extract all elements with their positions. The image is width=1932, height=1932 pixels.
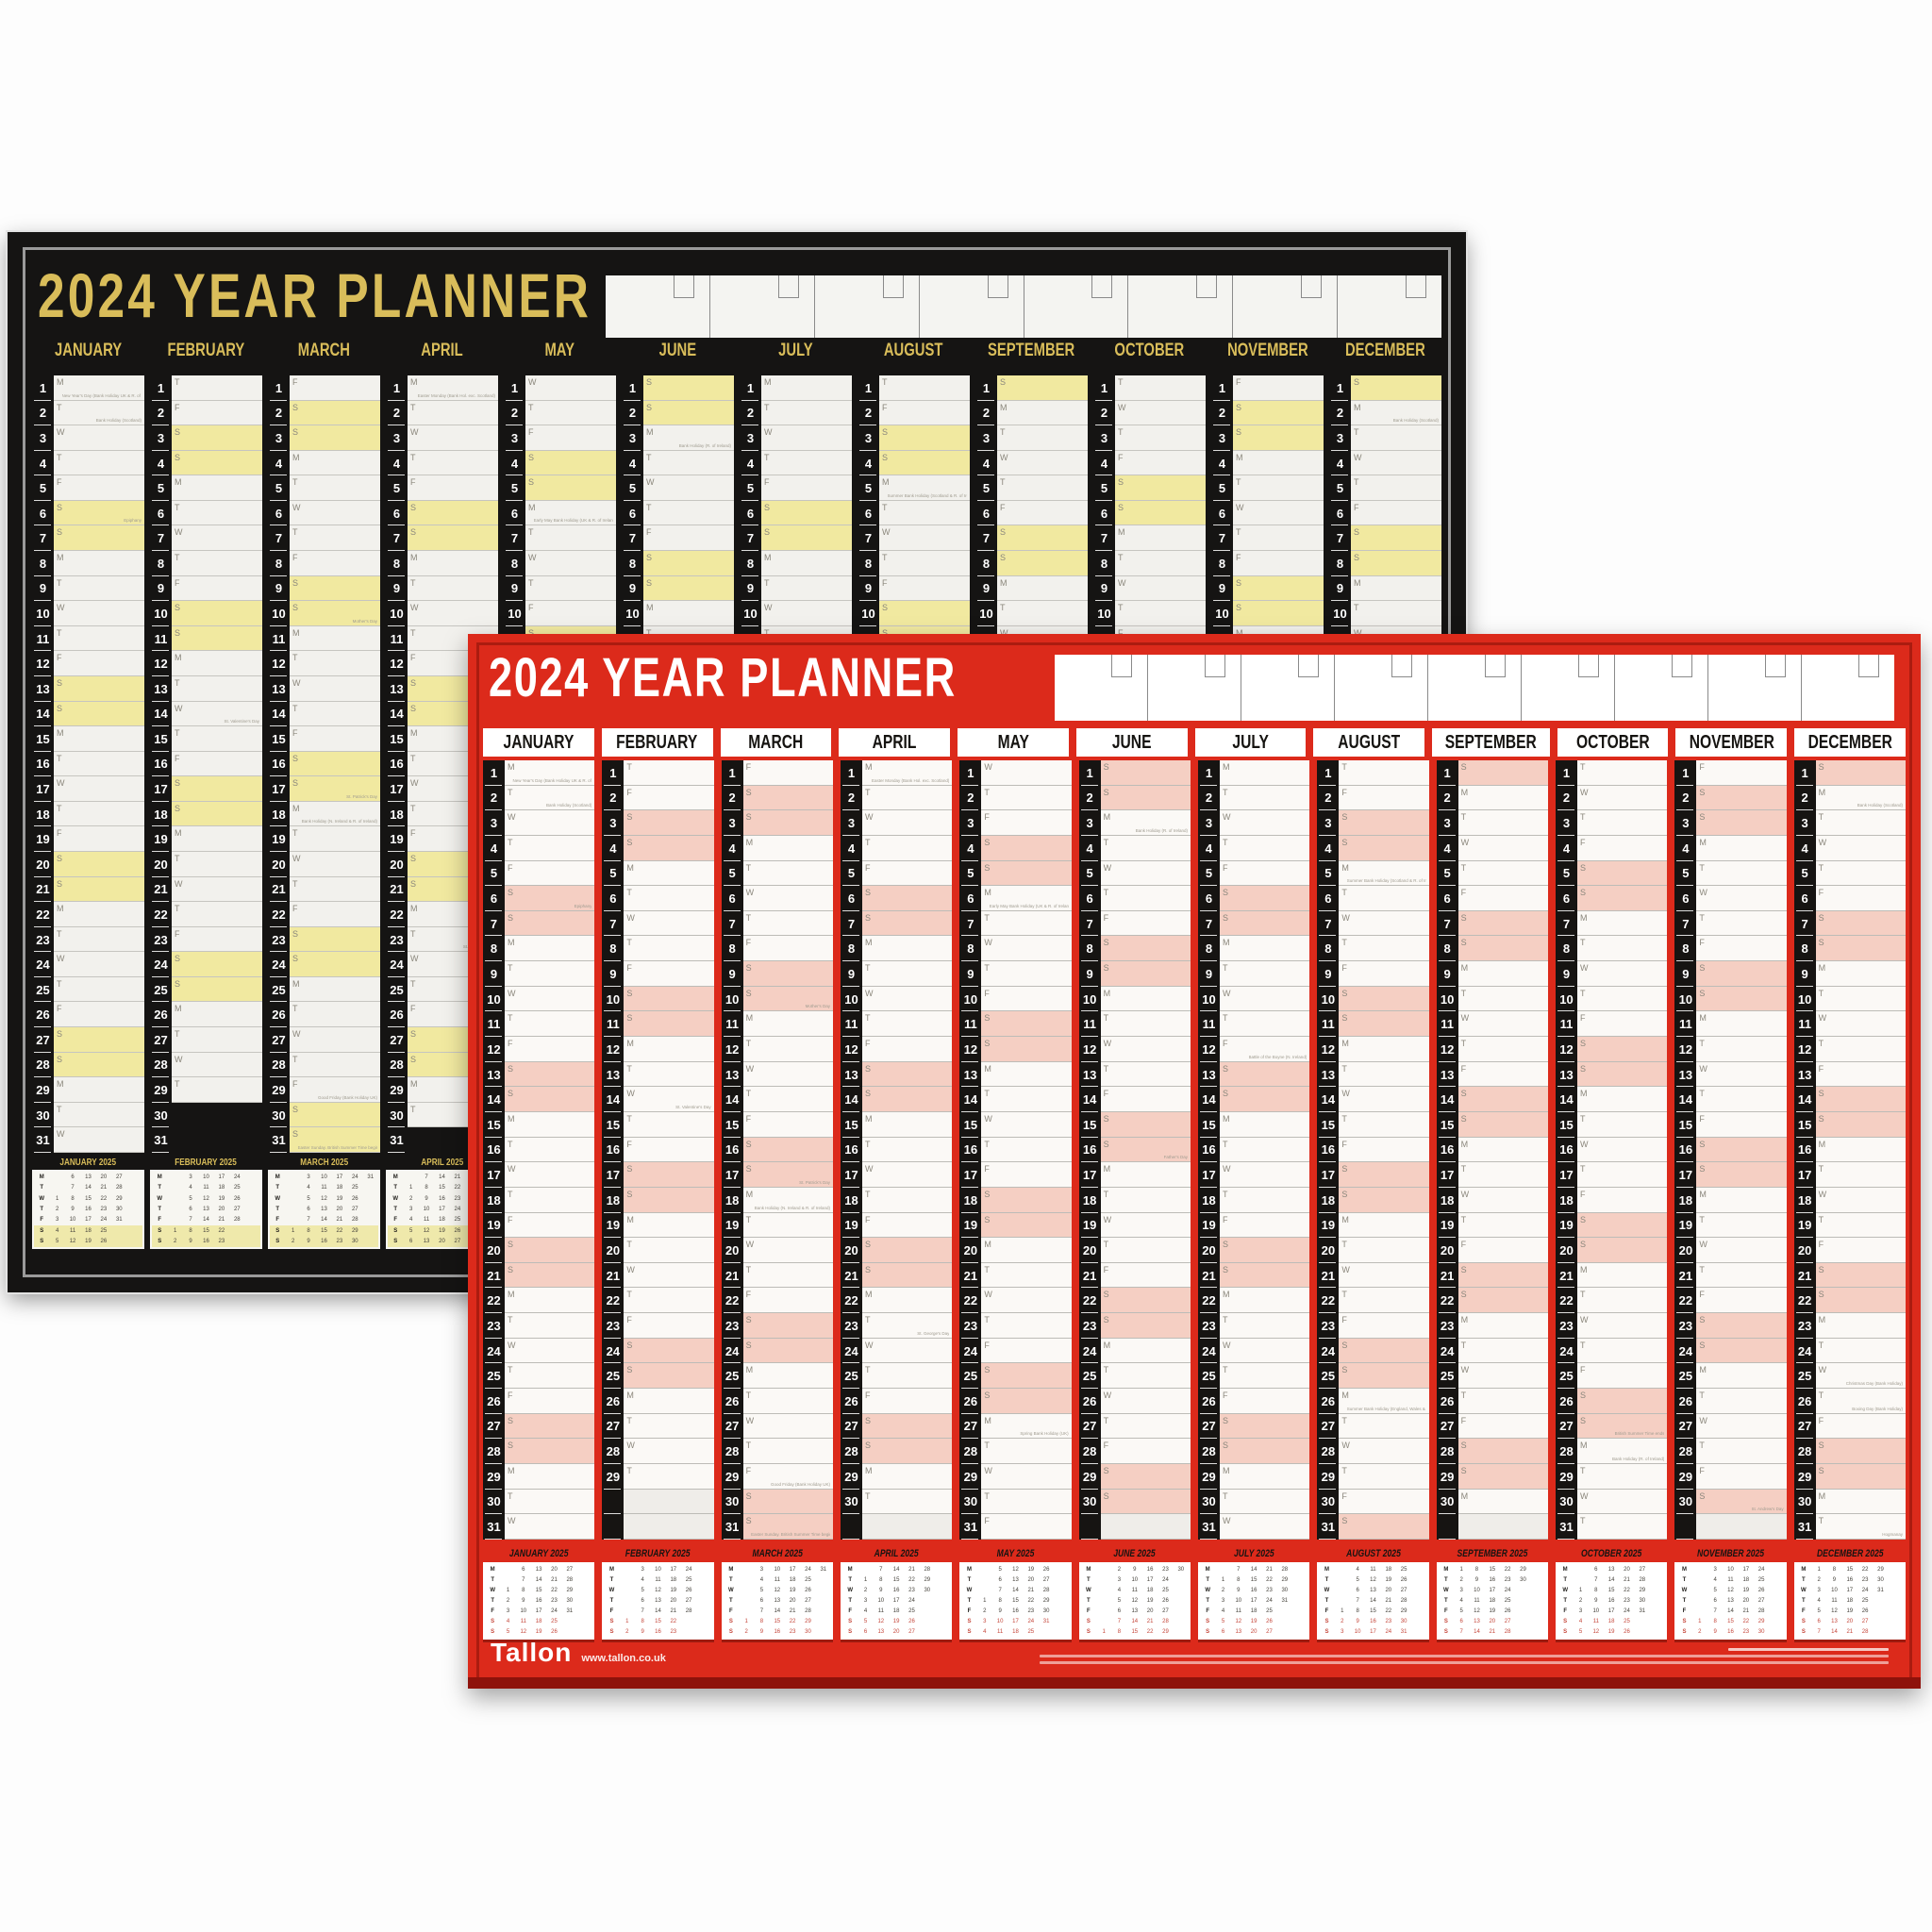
day-row: 5T: [722, 861, 833, 887]
day-row: 23S: [722, 1313, 833, 1339]
day-number: 10: [1198, 987, 1220, 1012]
day-number: 8: [975, 551, 997, 576]
day-number: 18: [1079, 1188, 1101, 1213]
mini-day-number: 22: [1500, 1567, 1515, 1573]
day-number: 17: [483, 1162, 505, 1188]
day-cell: W: [408, 601, 498, 626]
mini-day-number: 29: [1039, 1598, 1054, 1604]
day-number: 7: [1093, 525, 1115, 551]
day-letter: T: [746, 1039, 752, 1048]
day-letter: F: [865, 1215, 871, 1224]
day-letter: W: [1580, 963, 1589, 973]
day-letter: T: [746, 1089, 752, 1098]
day-number: 15: [268, 726, 290, 752]
day-letter: W: [508, 989, 516, 998]
holiday-note: Hogmanay: [1882, 1532, 1903, 1537]
mini-dow-letter: T: [1557, 1577, 1573, 1583]
day-number: 3: [1674, 810, 1696, 836]
day-letter: T: [410, 979, 416, 989]
mini-day-number: 17: [434, 1207, 449, 1212]
day-row: 20S: [1198, 1238, 1309, 1263]
day-number: 5: [959, 861, 981, 887]
mini-day-number: 16: [1485, 1577, 1500, 1583]
day-letter: T: [626, 888, 632, 897]
day-letter: W: [528, 377, 537, 387]
day-row: 22S: [1437, 1288, 1548, 1313]
mini-day-number: 15: [1246, 1577, 1261, 1583]
mini-calendar-row: F5121926: [1796, 1607, 1904, 1617]
mini-day-number: 16: [434, 1196, 449, 1202]
day-cell: W: [761, 601, 852, 626]
day-cell: S: [1351, 375, 1441, 401]
day-number: 3: [1437, 810, 1458, 836]
day-cell: W: [408, 425, 498, 451]
day-letter: W: [1104, 863, 1112, 873]
day-row: 4T: [1198, 836, 1309, 861]
day-letter: T: [1104, 1064, 1109, 1074]
mini-calendar-row: M6132027: [34, 1172, 142, 1182]
day-letter: W: [626, 913, 635, 923]
day-row: 22M: [841, 1288, 952, 1313]
day-row: 7F: [622, 525, 734, 551]
day-row: 4W: [975, 451, 1088, 476]
day-row: 28F: [1079, 1439, 1191, 1464]
mini-day-number: 1: [403, 1185, 418, 1191]
mini-day-number: 13: [1127, 1608, 1142, 1614]
day-number: 27: [1317, 1414, 1339, 1440]
day-letter: T: [1461, 1164, 1467, 1174]
day-cell: SEaster Sunday. British Summer Time begi…: [743, 1514, 833, 1540]
day-row: 17W: [841, 1162, 952, 1188]
mini-day-number: 20: [1485, 1619, 1500, 1624]
day-letter: S: [57, 854, 62, 863]
mini-day-number: 3: [754, 1567, 769, 1573]
day-cell: T: [1696, 1439, 1786, 1464]
day-cell: S: [1220, 1087, 1309, 1112]
mini-dow-letter: M: [724, 1567, 739, 1573]
mini-day-number: 2: [1573, 1598, 1588, 1604]
mini-day-number: 22: [1261, 1577, 1276, 1583]
day-cell: T: [172, 375, 262, 401]
month-header-label: JUNE: [1112, 733, 1152, 752]
day-letter: S: [746, 1164, 752, 1174]
day-number: 27: [1794, 1414, 1816, 1440]
day-cell: T: [1577, 936, 1667, 961]
day-number: 22: [150, 902, 172, 927]
mini-calendar-row: S6132027: [842, 1627, 950, 1638]
mini-day-number: 17: [80, 1217, 95, 1223]
day-number: 3: [722, 810, 743, 836]
mini-day-number: 8: [1826, 1567, 1841, 1573]
day-letter: S: [1236, 427, 1241, 437]
day-cell: S: [862, 1062, 952, 1088]
mini-day-number: 25: [450, 1217, 465, 1223]
day-cell: T: [54, 927, 144, 953]
mini-day-number: 19: [1246, 1619, 1261, 1624]
day-row: 22W: [959, 1288, 1071, 1313]
day-cell: S: [879, 601, 970, 626]
day-number: 13: [483, 1062, 505, 1088]
mini-day-number: 25: [1500, 1598, 1515, 1604]
day-letter: M: [508, 1114, 515, 1124]
mini-day-number: 1: [858, 1577, 873, 1583]
day-letter: M: [508, 1290, 515, 1299]
mini-dow-letter: M: [1557, 1567, 1573, 1573]
mini-day-number: 2: [620, 1629, 635, 1635]
day-row: 3W: [1198, 810, 1309, 836]
day-number: 23: [268, 927, 290, 953]
day-letter: T: [1236, 527, 1241, 537]
holiday-note: Bank Holiday (R. of Ireland): [1612, 1457, 1664, 1461]
day-number: 22: [1674, 1288, 1696, 1313]
day-letter: M: [410, 728, 418, 738]
day-cell: S: [862, 1439, 952, 1464]
mini-day-number: 26: [96, 1239, 111, 1244]
day-letter: T: [1223, 1365, 1228, 1374]
day-letter: W: [1000, 453, 1008, 462]
day-number: 27: [602, 1414, 624, 1440]
brand-footer: Tallonwww.tallon.co.uk: [491, 1640, 666, 1666]
mini-day-number: 9: [1350, 1619, 1365, 1624]
mini-day-number: 1: [1573, 1588, 1588, 1593]
day-cell: F: [1339, 786, 1428, 811]
day-row: 12S: [959, 1037, 1071, 1062]
day-letter: T: [1223, 963, 1228, 973]
day-cell: S: [172, 952, 262, 977]
day-letter: S: [1104, 1140, 1109, 1149]
mini-day-number: 5: [992, 1567, 1008, 1573]
day-letter: W: [1461, 1013, 1470, 1023]
day-row: 4T: [740, 451, 852, 476]
mini-day-number: 21: [1261, 1567, 1276, 1573]
mini-day-number: 1: [1215, 1577, 1230, 1583]
day-number: 22: [1556, 1288, 1577, 1313]
day-number: 2: [622, 401, 643, 426]
day-letter: S: [508, 888, 513, 897]
day-letter: T: [1118, 427, 1124, 437]
day-number: 1: [504, 375, 525, 401]
day-number: 2: [1198, 786, 1220, 811]
day-letter: F: [1104, 1089, 1109, 1098]
day-cell: T: [1115, 551, 1206, 576]
mini-day-number: 25: [1261, 1608, 1276, 1614]
day-row: 9S: [622, 576, 734, 602]
day-letter: F: [1104, 1441, 1109, 1450]
mini-day-number: 8: [1589, 1588, 1604, 1593]
month-header-card: DECEMBER: [1794, 728, 1906, 757]
day-number: 3: [1093, 425, 1115, 451]
month-header-label: APRIL: [873, 733, 917, 752]
mini-dow-letter: F: [34, 1217, 49, 1223]
day-number: 6: [722, 886, 743, 911]
mini-calendar: FEBRUARY 2025M3101724T4111825W5121926T61…: [150, 1155, 262, 1249]
mini-day-number: 26: [800, 1588, 815, 1593]
day-row: 26T: [722, 1389, 833, 1414]
day-number: 5: [1198, 861, 1220, 887]
day-number: 7: [959, 911, 981, 937]
mini-dow-letter: F: [1439, 1608, 1454, 1614]
mini-day-number: 9: [1127, 1567, 1142, 1573]
day-cell: T: [172, 676, 262, 702]
day-letter: T: [175, 1029, 180, 1039]
mini-calendar-title: JUNE 2025: [1079, 1545, 1191, 1562]
day-row: 14T: [722, 1087, 833, 1112]
day-row: 31SEaster Sunday. British Summer Time be…: [722, 1514, 833, 1540]
day-cell: S: [1101, 1464, 1191, 1490]
day-cell: F: [1339, 961, 1428, 987]
day-letter: S: [410, 704, 416, 713]
day-row: 3T: [1556, 810, 1667, 836]
day-row: 8M: [841, 936, 952, 961]
mini-calendar-card: M18152229T29162330W3101724T4111825F51219…: [1437, 1562, 1548, 1640]
day-cell: S: [1458, 1464, 1548, 1490]
day-cell: FBattle of the Boyne (N. Ireland): [1220, 1037, 1309, 1062]
day-row: 13S: [483, 1062, 594, 1088]
holiday-note: Christmas Day (Bank Holiday): [1846, 1381, 1903, 1386]
day-number: 23: [1198, 1313, 1220, 1339]
mini-day-number: 16: [889, 1588, 904, 1593]
day-number: 13: [959, 1062, 981, 1088]
month-column: 1MNew Year's Day (Bank Holiday UK & R. o…: [32, 375, 144, 1153]
day-row: 7S: [1437, 911, 1548, 937]
day-row: 17M: [1079, 1162, 1191, 1188]
day-number: 13: [268, 676, 290, 702]
day-number: 7: [386, 525, 408, 551]
mini-day-number: 14: [316, 1217, 331, 1223]
day-letter: S: [1819, 938, 1824, 947]
day-cell: S: [1458, 936, 1548, 961]
day-number: 15: [32, 726, 54, 752]
day-row: 14WSt. Valentine's Day: [150, 702, 262, 727]
day-number: 8: [1794, 936, 1816, 961]
mini-day-number: 19: [1142, 1598, 1158, 1604]
day-row: 26S: [1556, 1389, 1667, 1414]
day-row: 20S: [32, 852, 144, 877]
day-letter: S: [1118, 503, 1124, 512]
day-row: 19T: [722, 1213, 833, 1239]
day-number: 23: [1556, 1313, 1577, 1339]
mini-day-number: 6: [1707, 1598, 1723, 1604]
day-number: 19: [1079, 1213, 1101, 1239]
day-cell: SEaster Sunday. British Summer Time begi…: [290, 1127, 380, 1153]
day-letter: T: [292, 1055, 298, 1064]
mini-day-number: 9: [419, 1196, 434, 1202]
day-cell: S: [1696, 1138, 1786, 1163]
day-number: 2: [504, 401, 525, 426]
mini-day-number: 15: [889, 1577, 904, 1583]
mini-calendar-card: M4111825T5121926W6132027T7142128F1815222…: [1317, 1562, 1428, 1640]
day-letter: W: [175, 879, 183, 889]
mini-calendar-row: S4111825: [34, 1225, 142, 1236]
day-letter: M: [508, 762, 515, 772]
mini-calendar-row: S18152229: [1676, 1617, 1784, 1627]
day-letter: W: [57, 778, 65, 788]
day-cell: S: [1339, 1363, 1428, 1389]
day-row: 17S: [150, 776, 262, 802]
mini-day-number: 4: [1811, 1598, 1826, 1604]
day-row: 8F: [722, 936, 833, 961]
day-letter: S: [1699, 1315, 1705, 1324]
mini-day-number: 31: [1039, 1619, 1054, 1624]
day-letter: F: [1000, 503, 1006, 512]
day-row: 7F: [1079, 911, 1191, 937]
mini-day-number: 3: [301, 1174, 316, 1180]
day-row: 12W: [1079, 1037, 1191, 1062]
mini-day-number: 27: [111, 1174, 126, 1180]
mini-calendar-title-label: MARCH 2025: [752, 1549, 802, 1559]
mini-calendar-row: W4111825: [1081, 1585, 1189, 1595]
day-cell: SMother's Day: [290, 601, 380, 626]
day-number: 9: [1556, 961, 1577, 987]
mini-day-number: 29: [347, 1228, 362, 1234]
mini-day-number: 31: [1635, 1608, 1650, 1614]
mini-day-number: 25: [546, 1619, 561, 1624]
mini-day-number: 21: [546, 1577, 561, 1583]
day-letter: S: [984, 1215, 990, 1224]
day-letter: F: [57, 653, 62, 662]
mini-day-number: 23: [1619, 1598, 1634, 1604]
mini-day-number: 12: [198, 1196, 213, 1202]
mini-day-number: 19: [80, 1239, 95, 1244]
day-cell: MSummer Bank Holiday (Scotland & R. of I…: [1339, 861, 1428, 887]
day-letter: S: [292, 1105, 298, 1114]
day-cell: S: [1101, 786, 1191, 811]
day-cell: S: [408, 501, 498, 526]
mini-dow-letter: M: [842, 1567, 858, 1573]
day-cell: F: [981, 1162, 1071, 1188]
day-letter: T: [57, 578, 62, 588]
mini-dow-letter: F: [152, 1217, 167, 1223]
day-row: 17F: [959, 1162, 1071, 1188]
day-row: 24T: [1794, 1339, 1906, 1364]
day-cell: T: [1577, 1464, 1667, 1490]
day-number: 7: [841, 911, 862, 937]
day-number: 6: [975, 501, 997, 526]
day-cell: S: [1458, 1087, 1548, 1112]
day-letter: S: [764, 527, 770, 537]
day-row: 4T: [32, 451, 144, 476]
mini-calendar-card: M7142128T18152229W29162330T3101724F41118…: [841, 1562, 952, 1640]
mini-day-number: 22: [904, 1577, 919, 1583]
day-cell: M: [862, 1288, 952, 1313]
day-number: 18: [268, 802, 290, 827]
holiday-note: Easter Monday (Bank Hol. exc. Scotland): [418, 393, 495, 398]
day-cell: F: [1339, 1490, 1428, 1515]
day-cell: F: [408, 475, 498, 501]
mini-calendar-row: T6132027: [1676, 1595, 1784, 1606]
month-column: 1MEaster Monday (Bank Hol. exc. Scotland…: [841, 760, 952, 1540]
day-cell: [172, 1103, 262, 1128]
mini-day-number: 21: [666, 1608, 681, 1614]
day-letter: W: [865, 989, 874, 998]
day-letter: W: [1580, 1315, 1589, 1324]
day-number: 9: [1198, 961, 1220, 987]
day-letter: M: [746, 1013, 754, 1023]
day-number: 24: [959, 1339, 981, 1364]
mini-calendar-row: T18152229: [961, 1595, 1069, 1606]
mini-day-number: 8: [635, 1619, 650, 1624]
mini-day-number: 12: [1826, 1608, 1841, 1614]
mini-calendar-row: T6132027: [604, 1595, 711, 1606]
day-number: 26: [1674, 1389, 1696, 1414]
day-cell: F: [743, 760, 833, 786]
day-letter: T: [410, 578, 416, 588]
day-number: 16: [1198, 1138, 1220, 1163]
mini-day-number: 19: [1381, 1577, 1396, 1583]
month-column: 1M2T3W4T5F6S7S8M9T10W11T12FBattle of the…: [1198, 760, 1309, 1540]
day-cell: S: [643, 551, 734, 576]
day-letter: S: [626, 1341, 632, 1350]
day-letter: S: [175, 954, 180, 963]
mini-calendar-row: F310172431: [485, 1607, 592, 1617]
day-cell: F: [505, 1037, 594, 1062]
day-cell: S: [525, 451, 616, 476]
day-cell: W: [1339, 1263, 1428, 1289]
day-letter: W: [1118, 578, 1126, 588]
day-row: 29T: [602, 1464, 713, 1490]
mini-calendar-row: M3101724: [152, 1172, 260, 1182]
day-cell: M: [862, 1464, 952, 1490]
day-number: 15: [1317, 1112, 1339, 1138]
mini-dow-letter: S: [1557, 1629, 1573, 1635]
day-number: 27: [1674, 1414, 1696, 1440]
tallon-logo: Tallon: [491, 1638, 572, 1667]
day-number: 10: [386, 601, 408, 626]
red-mini-calendars-row: JANUARY 2025M6132027T7142128W18152229T29…: [483, 1545, 1906, 1640]
mini-day-number: 4: [1573, 1619, 1588, 1624]
day-letter: T: [1000, 477, 1006, 487]
day-letter: W: [1819, 1190, 1827, 1199]
day-cell: F: [879, 576, 970, 602]
mini-dow-letter: S: [604, 1629, 619, 1635]
mini-calendar: MARCH 2025M310172431T4111825W5121926T613…: [268, 1155, 380, 1249]
day-row: 3F: [504, 425, 616, 451]
day-cell: S: [981, 1389, 1071, 1414]
day-row: 26T: [1437, 1389, 1548, 1414]
mini-dow-letter: M: [485, 1567, 500, 1573]
mini-day-number: 5: [1707, 1588, 1723, 1593]
day-letter: F: [1341, 1491, 1347, 1501]
month-header-card: APRIL: [839, 728, 950, 757]
day-letter: F: [292, 1079, 298, 1089]
day-cell: W: [290, 501, 380, 526]
day-cell: T: [1351, 475, 1441, 501]
day-row: 12S: [1556, 1037, 1667, 1062]
day-number: 10: [602, 987, 624, 1012]
day-letter: M: [1461, 1491, 1469, 1501]
day-cell: T: [1577, 1339, 1667, 1364]
day-cell: S: [1339, 1162, 1428, 1188]
day-row: 25S: [1317, 1363, 1428, 1389]
mini-dow-letter: T: [961, 1577, 976, 1583]
day-letter: S: [1699, 788, 1705, 797]
day-cell: S: [624, 1363, 713, 1389]
day-cell: M: [743, 836, 833, 861]
day-row: 26T: [1674, 1389, 1786, 1414]
day-letter: T: [1223, 1013, 1228, 1023]
day-cell: T: [862, 1490, 952, 1515]
mini-dow-letter: T: [1081, 1577, 1096, 1583]
day-row: 6T: [602, 886, 713, 911]
day-cell: THogmanay: [1816, 1514, 1906, 1540]
day-cell: W: [1233, 501, 1324, 526]
day-number: 5: [1317, 861, 1339, 887]
day-row: 19T: [1794, 1213, 1906, 1239]
day-cell: T: [1458, 810, 1548, 836]
day-row: 7S: [1794, 911, 1906, 937]
day-number: 8: [386, 551, 408, 576]
day-letter: S: [865, 1441, 871, 1450]
